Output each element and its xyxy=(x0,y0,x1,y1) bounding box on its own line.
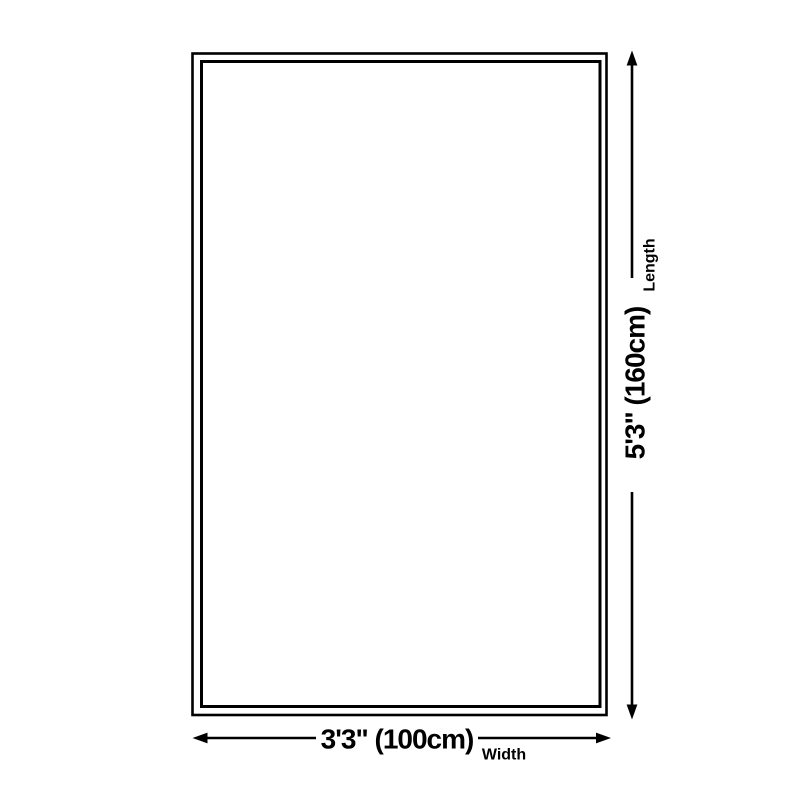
width-value-label: 3'3" (100cm) xyxy=(321,724,474,755)
rug-outline-outer xyxy=(193,54,607,716)
dimension-diagram: 5'3" (160cm) Length 3'3" (100cm) Width xyxy=(0,0,800,800)
length-axis-label: Length xyxy=(642,238,659,291)
arrow-left-icon xyxy=(193,733,208,744)
size-diagram-canvas: 5'3" (160cm) Length 3'3" (100cm) Width xyxy=(0,0,800,800)
length-value-label: 5'3" (160cm) xyxy=(620,307,651,460)
arrow-right-icon xyxy=(596,733,611,744)
rug-outline xyxy=(193,54,607,716)
width-axis-label: Width xyxy=(482,747,526,764)
arrow-up-icon xyxy=(627,51,638,66)
arrow-down-icon xyxy=(627,705,638,720)
